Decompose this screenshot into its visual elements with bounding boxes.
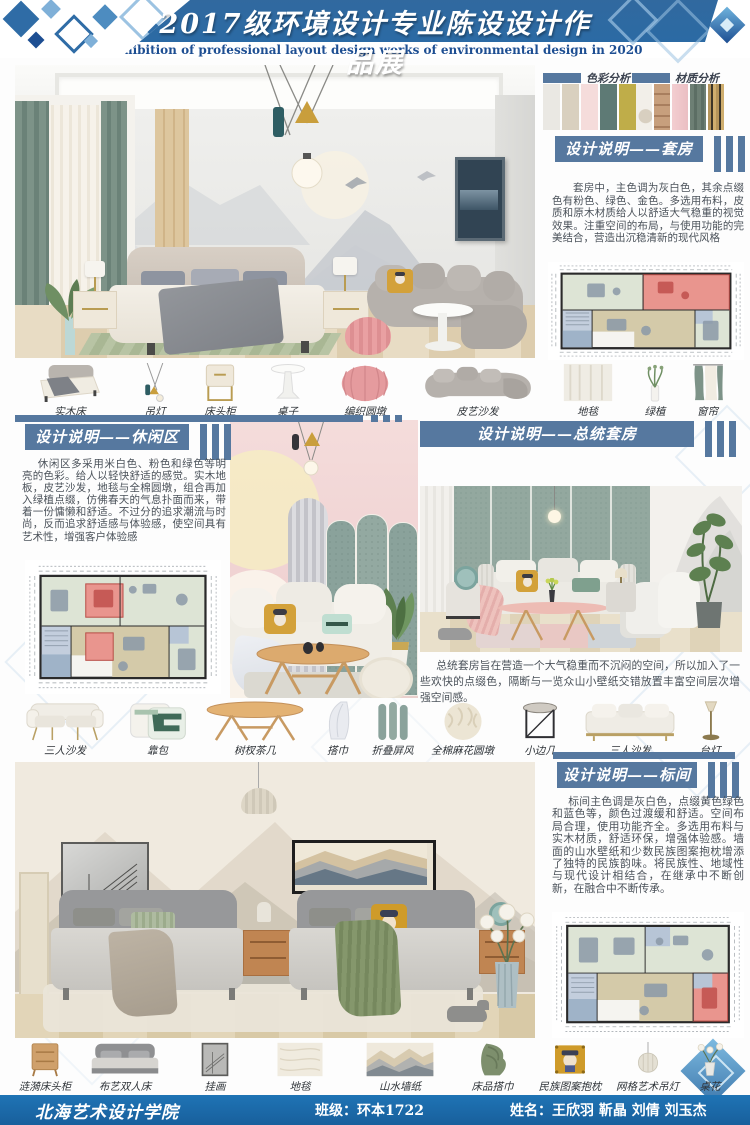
wood-nightstand-icon [25,1042,65,1077]
nightstand-icon [198,363,242,402]
pendant-lights-icon [245,65,355,225]
student-names: 姓名：王欣羽 靳晶 刘倩 刘玉杰 [510,1100,707,1120]
branch-table-icon [252,642,374,698]
leisure-floor-plan [25,560,221,694]
wood-bed-icon [34,363,106,402]
standard-description: 标间主色调是灰白色，点缀黄色绿色和蓝色等，颜色过渡缓和舒适。空间布局合理，使用功… [552,796,744,895]
small-lamp [257,902,271,922]
material-leather [636,84,652,130]
wood-nightstand [243,930,293,976]
material-samples [636,84,726,130]
furniture-item: 涟漪床头柜 [15,1042,75,1094]
flower-vase-icon [477,902,535,1010]
plant-icon [638,363,672,402]
furniture-item: 树杈茶几 [200,700,310,758]
furniture-item: 台灯 [685,700,735,758]
stripe-decoration [700,421,736,457]
divider-bar [15,415,363,422]
poster-title: 2017级环境设计专业陈设设计作品展 [150,2,600,80]
rug [43,984,483,1032]
fabric-bed-icon [81,1042,169,1077]
pendant-icon [280,420,340,480]
label-bar [632,73,670,83]
tall-plant-icon [672,502,742,632]
furniture-row-1: 实木床 吊灯 床头柜 桌子 [15,363,735,419]
fluffy-pouf [362,660,410,698]
cat [438,628,472,640]
diamond-icon [92,4,117,29]
pendant-lamp-icon [137,363,173,402]
furniture-item: 靠包 [115,700,200,758]
stripe-decoration [195,424,231,460]
wall-art-frame [455,157,505,241]
section-title-leisure: 设计说明——休闲区 [25,424,189,450]
poster-page: Exhibition of professional layout design… [0,0,750,1125]
leisure-description: 休闲区多采用米白色、粉色和绿色等明亮的色彩。给人以轻快舒适的感觉。实木地板，皮艺… [22,458,226,543]
table-flower-icon [693,1042,727,1077]
color-swatch [619,84,636,130]
diamond-icon [54,14,94,54]
table-lamp-right [333,257,357,275]
furniture-item: 床头柜 [185,363,255,419]
diamond-icon [41,0,61,19]
ethnic-pillow [516,570,538,592]
ethnic-pillow [264,604,296,634]
section-title-presidential: 设计说明——总统套房 [420,421,694,447]
furniture-item: 实木床 [15,363,125,419]
color-swatch [581,84,598,130]
green-cushion [322,614,352,634]
furniture-item: 小边几 [505,700,575,758]
cotton-pouf-icon [440,700,486,741]
stripe-decoration [703,762,739,798]
stripe-decoration [709,136,745,172]
mountain-wallpaper-icon [359,1042,441,1077]
woven-pouf-icon [338,363,392,402]
section-header-leisure: 设计说明——休闲区 [25,424,231,460]
furniture-item: 民族图案抱枕 [530,1042,610,1094]
furniture-item: 地毯 [255,1042,345,1094]
section-header-presidential: 设计说明——总统套房 [420,421,736,457]
section-header-suite: 设计说明——套房 [555,136,745,172]
class-info: 班级：环本1722 [315,1100,424,1120]
furniture-item: 皮艺沙发 [410,363,545,419]
panorama-art-frame [292,840,436,894]
section-title-suite: 设计说明——套房 [555,136,703,162]
furniture-item: 三人沙发 [15,700,115,758]
yellow-pillow [387,269,413,293]
color-swatch [562,84,579,130]
nightstand-left [73,291,117,329]
sofa-icon [581,700,679,741]
furniture-item: 网格艺术吊灯 [610,1042,685,1094]
standard-render-image [15,762,535,1038]
curtain-icon [690,363,726,402]
color-swatch [600,84,617,130]
school-name: 北海艺术设计学院 [35,1098,179,1123]
folding-screen-icon [376,700,410,741]
floor-lamp-icon [695,700,725,741]
green-throw [335,918,402,1017]
rug-icon [561,363,615,402]
suite-render-image [15,65,535,358]
presidential-render-image [420,486,742,652]
divider-squares [366,415,402,422]
green-throw-icon [471,1042,515,1077]
presidential-description: 总统套房旨在营造一个大气稳重而不沉闷的空间，所以加入了一些欢快的点缀色，隔断与一… [420,658,740,706]
furniture-item: 布艺双人床 [75,1042,175,1094]
suite-description: 套房中，主色调为灰白色，其余点缀色有粉色、绿色、金色。多选用布料，皮质和原木材质… [552,182,744,245]
material-metal [708,84,724,130]
cushion-icon [126,700,190,741]
sofa-icon [22,700,108,741]
furniture-item: 全棉麻花圆墩 [420,700,505,758]
diamond-icon [28,32,45,49]
furniture-item: 折叠屏风 [365,700,420,758]
section-title-standard: 设计说明——标间 [557,762,697,788]
furniture-row-3: 涟漪床头柜 布艺双人床 挂画 地毯 [15,1042,735,1094]
furniture-item: 搭巾 [310,700,365,758]
furniture-item: 地毯 [545,363,630,419]
side-table [446,582,480,619]
tan-throw [108,928,178,1018]
cat [447,1006,487,1022]
material-curtain [690,84,706,130]
furniture-item: 山水墙纸 [345,1042,455,1094]
branch-table-icon [203,700,307,741]
side-table [606,582,636,612]
suite-floor-plan [548,262,744,360]
leisure-render-image [230,420,418,698]
throw-icon [321,700,355,741]
furniture-item: 床品搭巾 [455,1042,530,1094]
table-lamp-left [85,261,105,277]
furniture-item: 三人沙发 [575,700,685,758]
standard-floor-plan [552,912,744,1038]
color-swatches [543,84,638,130]
gray-throw [158,277,284,355]
furniture-item: 编织圆墩 [320,363,410,419]
marble-rug-icon [272,1042,328,1077]
grid-pendant-icon [630,1042,666,1077]
divider-bar [553,752,735,759]
furniture-item: 窗帘 [680,363,735,419]
material-pink-panel [672,84,688,130]
material-wood [654,84,670,130]
furniture-item: 绿植 [630,363,680,419]
furniture-item: 吊灯 [125,363,185,419]
side-table-icon [518,700,562,741]
leather-sofa-icon [418,363,538,402]
footer-band: 北海艺术设计学院 班级：环本1722 姓名：王欣羽 靳晶 刘倩 刘玉杰 [0,1095,750,1125]
furniture-item: 挂画 [175,1042,255,1094]
section-header-standard: 设计说明——标间 [557,762,739,798]
color-swatch [543,84,560,130]
ethnic-pillow-icon [548,1042,592,1077]
furniture-item: 桌子 [255,363,320,419]
pink-pouf [345,317,391,355]
furniture-item: 桌花 [685,1042,735,1094]
wall-art-icon [198,1042,232,1077]
furniture-row-2: 三人沙发 靠包 树杈茶几 搭巾 [15,700,735,758]
table-flowers [542,578,562,604]
side-table-icon [267,363,309,402]
